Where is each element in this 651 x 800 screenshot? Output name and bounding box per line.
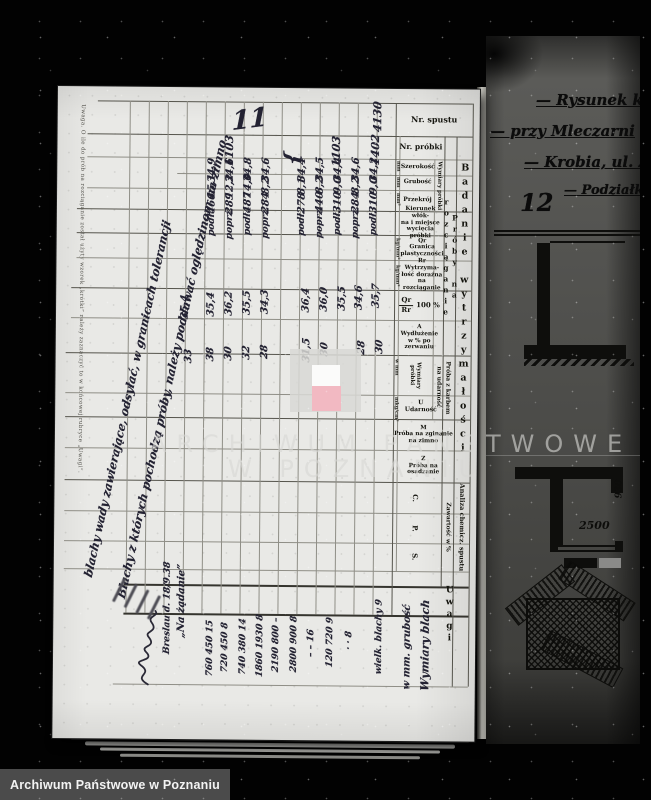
header-uwagi: Uwagi [442, 589, 456, 641]
handwritten-entry: 35,5 [242, 290, 253, 316]
handwritten-entry: · · 8 [344, 630, 354, 650]
drawing-title-line: — przy Mleczarni [490, 122, 635, 140]
handwritten-entries: 114130140211031103{34,234,634,434,534,43… [58, 86, 480, 90]
handwritten-entry: 120 720 9 [325, 617, 335, 669]
handwritten-entry: 31,5 [301, 337, 312, 363]
header-wymiary-probki-udarnosc: Wymiary próbki [397, 355, 432, 395]
header-nr-probki: Nr. próbki [397, 136, 444, 159]
header-rr: Rr Wytrzyma- łość doraźna na rozciąganie [400, 260, 443, 290]
handwritten-entry: 740 380 14 [238, 618, 248, 676]
drawing-title-line: — Rysunek k [536, 91, 640, 109]
header-grubosc: Grubość [401, 175, 434, 190]
handwritten-entry: 2800 900 8 [289, 615, 299, 673]
unit-mm: mm [395, 177, 401, 188]
handwritten-entry: 32 [241, 345, 252, 361]
handwritten-entry: 1860 1930 8 [255, 614, 266, 678]
dimension-endcap [550, 541, 558, 552]
dimension-line [553, 545, 623, 547]
handwritten-entry: wielk. blachy 9 [374, 599, 385, 676]
beam-serration [524, 359, 634, 366]
margin-fine-print: Uwaga. O ile do prób na rozciąganie zost… [76, 104, 86, 534]
dimension-endcap [615, 541, 623, 552]
handwritten-entry: poprz. [351, 206, 361, 239]
handwritten-entry: poprz. [315, 206, 325, 239]
sheet-edge [100, 748, 440, 754]
handwritten-entry: 30 [319, 342, 330, 358]
handwritten-entry: podł. [369, 209, 379, 236]
header-osadzanie: Z Próba na osadzanie [393, 450, 454, 483]
handwritten-entry: 34,6 [354, 285, 365, 311]
handwritten-entry: 36,2 [224, 291, 235, 317]
page-number-12: 12 [520, 188, 553, 217]
handwritten-entry: podł. [297, 210, 307, 237]
unit-mm: mm [395, 161, 401, 172]
unit-mm2: mm² [395, 193, 401, 206]
handwritten-entry: 30 [374, 339, 385, 355]
drawing-title-line: — Podziałk [564, 183, 640, 198]
handwritten-entry: 28 [259, 344, 270, 360]
handwritten-entry: 720 450 8 [220, 622, 230, 674]
handwritten-entry: 36,4 [301, 287, 312, 313]
handwritten-entry: podł. [333, 209, 343, 236]
handwritten-entry: poprz. [225, 207, 235, 240]
header-c: C. [398, 482, 431, 513]
rule-line [494, 230, 640, 232]
unit-kg-mm2: kg/mm² [394, 265, 400, 287]
drawing-title-line: — Krobia, ul. Ż [524, 153, 640, 171]
unit-mkg-cm2: mkg/cm² [393, 397, 399, 422]
table-grid [58, 86, 480, 90]
beam-flange [524, 345, 626, 359]
header-szerokosc: Szerokość [401, 159, 434, 175]
grid-line-h [113, 684, 468, 688]
header-zawartosc: Zawartość w % [441, 482, 454, 571]
header-qr-rr: QrRr 100 % [396, 290, 443, 320]
hatched-detail-square [526, 598, 620, 670]
grid-line-v [277, 102, 282, 614]
handwritten-entry: 35,7 [371, 283, 382, 309]
detail-bar-gray [599, 558, 621, 568]
qr-rr-fraction: QrRr [399, 296, 413, 313]
header-nr-spustu: Nr. spustu [396, 103, 473, 137]
qr-rr-percent: 100 % [416, 301, 440, 309]
handwritten-entry: 28 [356, 340, 367, 356]
header-kierunek: Kierunek włók- na i miejsce wycięcia pró… [397, 211, 444, 235]
scan-viewport: — Rysunek k — przy Mleczarni — Krobia, u… [0, 0, 651, 800]
handwritten-entry: – – 16 [306, 629, 316, 658]
handwritten-entry: w mm. grubość [401, 604, 413, 691]
handwritten-entry: 35,5 [337, 285, 348, 311]
handwritten-entry: 36,0 [319, 286, 330, 312]
grid-line-v [144, 101, 149, 613]
sheet-edge [120, 754, 420, 760]
scratch-line [486, 455, 640, 456]
header-analiza: Analiza chemicz. spustu [453, 482, 470, 571]
dimension-line [553, 550, 623, 552]
unit-w-mm: w mm [393, 359, 399, 376]
handwritten-entry: 35,4 [206, 291, 217, 317]
dimension-930: 930 [614, 480, 624, 499]
dimension-2500: 2500 [579, 519, 610, 532]
beam-flange [515, 467, 623, 479]
handwritten-entry: „Na żądanie” [176, 563, 188, 638]
rule-line [494, 234, 640, 236]
beam-line [550, 241, 625, 243]
handwritten-entry: 30 [223, 346, 234, 362]
unit-kg-mm2: kg/mm² [394, 238, 400, 260]
handwritten-entry: 2190 800 – [271, 617, 281, 673]
handwritten-entry: 34,3 [260, 289, 271, 315]
handwritten-entry: Wymiary blach [418, 599, 432, 692]
handwritten-entry: 760 450 15 [205, 619, 215, 677]
beam-web [550, 479, 563, 545]
archive-footer-bar: Archiwum Państwowe w Poznaniu [0, 769, 230, 800]
drawing-page: — Rysunek k — przy Mleczarni — Krobia, u… [486, 36, 640, 744]
handwritten-entry: 33 [183, 348, 194, 364]
header-p: P. [398, 513, 431, 543]
archive-name: Archiwum Państwowe w Poznaniu [10, 778, 220, 792]
ledger-page: Uwaga. O ile do prób na rozciąganie zost… [52, 86, 480, 742]
header-badanie-wytrzymalosci: Badanie wytrzymałości [454, 136, 473, 482]
handwritten-entry: podł. [243, 209, 253, 236]
beam-web [537, 243, 550, 358]
handwritten-entry: 38 [205, 347, 216, 363]
header-zginanie: M Próba na zginanie na zimno [393, 419, 454, 451]
handwritten-entry: 11 [232, 102, 268, 137]
header-wydluzenie: A Wydłużenie w % po zerwaniu [396, 320, 443, 355]
handwritten-entry: poprz. [261, 206, 271, 239]
header-udarnosc: U Udarność [399, 395, 442, 419]
header-s: S. [398, 543, 431, 571]
handwritten-entry: 4130 [371, 101, 384, 134]
header-qr: Qr Granica plastyczności [400, 235, 443, 260]
